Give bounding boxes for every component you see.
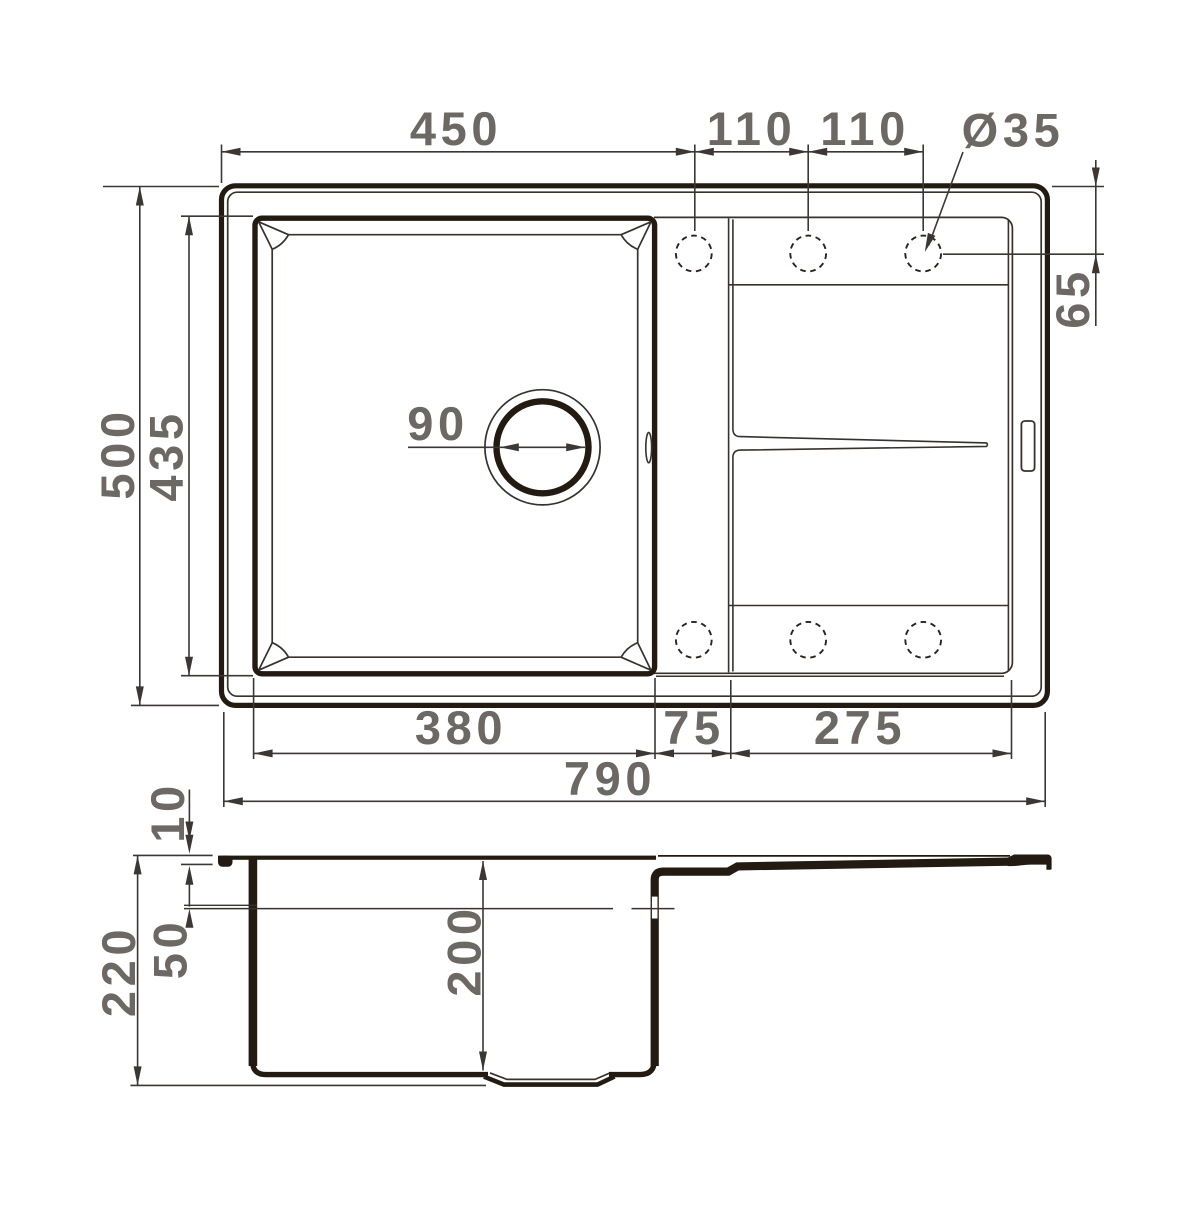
svg-text:200: 200 — [438, 904, 491, 996]
svg-text:380: 380 — [415, 701, 507, 754]
svg-text:110: 110 — [707, 102, 797, 155]
svg-text:500: 500 — [91, 407, 144, 499]
svg-text:275: 275 — [814, 701, 906, 754]
svg-text:110: 110 — [820, 102, 910, 155]
svg-text:790: 790 — [564, 752, 656, 805]
svg-text:Ø35: Ø35 — [962, 104, 1065, 157]
svg-text:435: 435 — [140, 409, 193, 501]
svg-text:220: 220 — [92, 925, 145, 1017]
svg-text:50: 50 — [144, 918, 197, 979]
svg-text:10: 10 — [141, 781, 194, 842]
svg-text:75: 75 — [663, 701, 724, 754]
svg-text:450: 450 — [410, 102, 502, 155]
svg-text:90: 90 — [407, 397, 468, 450]
svg-text:65: 65 — [1046, 267, 1099, 328]
